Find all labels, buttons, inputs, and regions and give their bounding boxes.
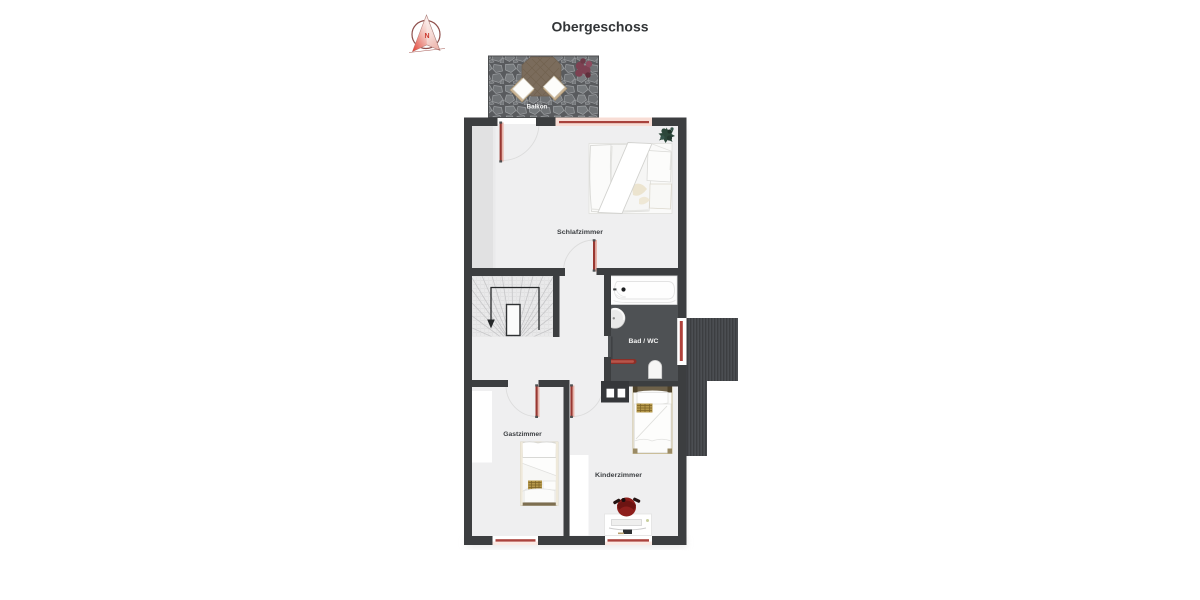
svg-text:Obergeschoss: Obergeschoss <box>552 19 649 34</box>
svg-text:Gastzimmer: Gastzimmer <box>503 431 542 438</box>
svg-text:Schlafzimmer: Schlafzimmer <box>557 229 603 236</box>
svg-text:Balkon: Balkon <box>527 104 548 111</box>
svg-text:Bad / WC: Bad / WC <box>629 338 659 345</box>
svg-text:N: N <box>424 33 429 40</box>
svg-text:Kinderzimmer: Kinderzimmer <box>595 472 642 479</box>
